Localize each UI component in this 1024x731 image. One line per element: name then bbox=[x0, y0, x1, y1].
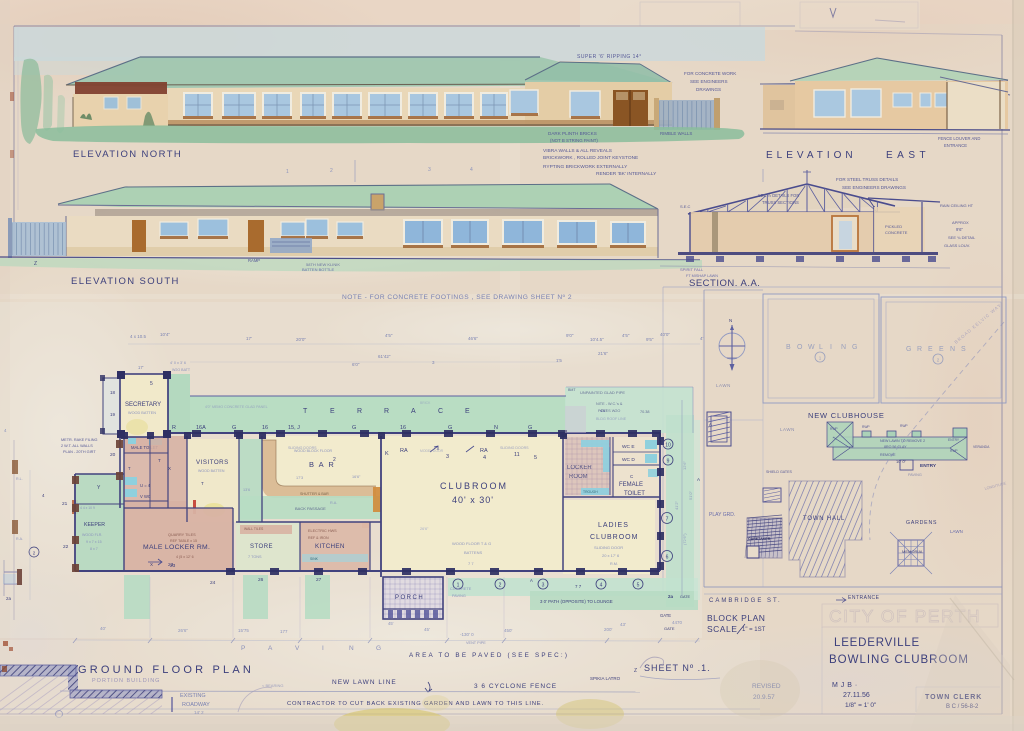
svg-text:WALL TILES: WALL TILES bbox=[244, 527, 264, 531]
svg-text:40': 40' bbox=[100, 626, 106, 631]
svg-text:4'5": 4'5" bbox=[385, 333, 393, 338]
svg-text:CLUBROOM: CLUBROOM bbox=[590, 534, 638, 541]
svg-text:4' 0 x 3' 6: 4' 0 x 3' 6 bbox=[170, 361, 186, 365]
svg-text:2a: 2a bbox=[668, 594, 674, 599]
svg-text:2a: 2a bbox=[6, 596, 12, 601]
svg-text:10'4.5": 10'4.5" bbox=[590, 337, 604, 342]
svg-text:N: N bbox=[349, 645, 354, 652]
svg-text:< BEARING: < BEARING bbox=[262, 683, 283, 688]
svg-text:SLIDING DOOR: SLIDING DOOR bbox=[594, 545, 623, 550]
svg-text:O: O bbox=[797, 344, 803, 351]
svg-text:ENTRANCE: ENTRANCE bbox=[944, 143, 967, 148]
svg-text:G: G bbox=[376, 645, 381, 652]
svg-text:3: 3 bbox=[542, 583, 545, 589]
svg-text:4': 4' bbox=[700, 336, 704, 341]
svg-text:PORTION BUILDING: PORTION BUILDING bbox=[92, 678, 160, 684]
svg-text:40'0": 40'0" bbox=[660, 332, 670, 337]
svg-text:B: B bbox=[786, 344, 791, 351]
svg-text:21: 21 bbox=[62, 501, 68, 507]
svg-text:4'0" MEMO CONCRETE GLAD PA: 4'0" MEMO CONCRETE GLAD PANEL bbox=[205, 405, 268, 409]
svg-text:PICKLED: PICKLED bbox=[885, 224, 902, 229]
svg-text:A: A bbox=[411, 408, 416, 415]
svg-text:R.M.: R.M. bbox=[610, 562, 618, 566]
svg-text:RA: RA bbox=[480, 448, 488, 454]
svg-text:PAVING: PAVING bbox=[452, 594, 466, 598]
svg-text:26: 26 bbox=[258, 577, 264, 583]
svg-text:DARK PLINTH BRICKS: DARK PLINTH BRICKS bbox=[548, 131, 597, 136]
svg-text:7 7: 7 7 bbox=[575, 584, 582, 589]
svg-text:UNPAINTED GLAD PIPE: UNPAINTED GLAD PIPE bbox=[580, 390, 625, 395]
svg-text:E: E bbox=[928, 346, 933, 353]
svg-text:U = 4: U = 4 bbox=[140, 483, 151, 488]
svg-text:7 TONS: 7 TONS bbox=[248, 555, 262, 559]
svg-text:17': 17' bbox=[138, 365, 144, 370]
svg-text:43': 43' bbox=[620, 622, 626, 627]
svg-text:ENTRY: ENTRY bbox=[948, 438, 960, 442]
svg-text:R: R bbox=[917, 346, 922, 353]
svg-text:GARDENS: GARDENS bbox=[906, 520, 937, 526]
svg-text:10'4": 10'4" bbox=[160, 332, 170, 337]
svg-text:FENCE LOUVER AND: FENCE LOUVER AND bbox=[938, 136, 980, 141]
svg-text:S: S bbox=[961, 346, 966, 353]
svg-text:K: K bbox=[385, 451, 389, 457]
svg-text:R: R bbox=[172, 425, 176, 431]
svg-text:E: E bbox=[939, 346, 944, 353]
svg-text:LOCKER: LOCKER bbox=[567, 465, 592, 471]
svg-text:(72'6"): (72'6") bbox=[682, 533, 687, 545]
svg-text:NEW LAWN TO REMOVE 2: NEW LAWN TO REMOVE 2 bbox=[880, 439, 925, 443]
svg-text:RWP: RWP bbox=[950, 449, 958, 453]
svg-text:WOOD FLOOR T & G: WOOD FLOOR T & G bbox=[452, 541, 491, 546]
svg-text:5: 5 bbox=[150, 381, 153, 387]
svg-text:ELEVATION: ELEVATION bbox=[766, 150, 857, 161]
svg-text:ELEVATION NORTH: ELEVATION NORTH bbox=[73, 149, 182, 160]
svg-text:4470: 4470 bbox=[672, 620, 683, 625]
svg-text:WOOD FLR.: WOOD FLR. bbox=[82, 533, 102, 537]
svg-text:FT MISHAP LAWN: FT MISHAP LAWN bbox=[686, 274, 718, 278]
svg-text:X: X bbox=[150, 562, 153, 567]
svg-text:20: 20 bbox=[110, 452, 116, 458]
svg-text:2: 2 bbox=[330, 168, 333, 174]
svg-text:61'42": 61'42" bbox=[378, 354, 391, 359]
svg-text:2: 2 bbox=[333, 457, 336, 463]
svg-text:MEMORIAL: MEMORIAL bbox=[902, 549, 924, 554]
svg-text:17': 17' bbox=[246, 336, 252, 341]
svg-text:WC D: WC D bbox=[622, 457, 635, 463]
svg-text:15, J: 15, J bbox=[288, 425, 300, 431]
svg-text:VERANDA: VERANDA bbox=[973, 445, 990, 449]
svg-text:FEMALE: FEMALE bbox=[619, 482, 643, 488]
svg-text:LAWN: LAWN bbox=[950, 529, 963, 534]
svg-text:M J B ·: M J B · bbox=[832, 682, 858, 689]
svg-text:SINK: SINK bbox=[310, 557, 319, 561]
svg-text:7 7: 7 7 bbox=[468, 561, 474, 566]
svg-text:I: I bbox=[322, 645, 324, 652]
svg-text:ELECTRIC HWS: ELECTRIC HWS bbox=[308, 529, 337, 533]
svg-text:12'6": 12'6" bbox=[682, 461, 687, 470]
svg-text:BATTENS: BATTENS bbox=[464, 550, 482, 555]
svg-text:CAMBRIDGE ST.: CAMBRIDGE ST. bbox=[709, 598, 782, 604]
svg-text:RIMBLE WALLS: RIMBLE WALLS bbox=[660, 131, 692, 136]
svg-text:9'5": 9'5" bbox=[646, 337, 654, 342]
svg-text:9'0": 9'0" bbox=[566, 333, 574, 338]
svg-text:26'6": 26'6" bbox=[420, 527, 429, 531]
svg-text:20 x 17' 6: 20 x 17' 6 bbox=[602, 553, 620, 558]
svg-text:W2O BATT: W2O BATT bbox=[172, 368, 191, 372]
svg-text:REF TABLE x 15: REF TABLE x 15 bbox=[170, 539, 197, 543]
svg-text:GATE: GATE bbox=[664, 626, 675, 631]
svg-text:NITE - W.C.'s &: NITE - W.C.'s & bbox=[596, 402, 623, 406]
svg-text:3: 3 bbox=[446, 454, 449, 460]
svg-text:SEE ENGINEERS DRAWINGS: SEE ENGINEERS DRAWINGS bbox=[842, 185, 906, 190]
svg-text:R.A.: R.A. bbox=[16, 537, 23, 541]
svg-text:V: V bbox=[295, 645, 300, 652]
svg-text:BATTEN BOTTLE: BATTEN BOTTLE bbox=[302, 267, 334, 272]
svg-text:G: G bbox=[906, 346, 911, 353]
svg-text:PLAN - 20TH GIRT: PLAN - 20TH GIRT bbox=[63, 450, 96, 454]
svg-text:Z: Z bbox=[634, 668, 637, 674]
svg-text:SHUTTER & BAR: SHUTTER & BAR bbox=[300, 492, 329, 496]
svg-text:BACK PASSAGE: BACK PASSAGE bbox=[295, 506, 326, 511]
svg-text:17'3: 17'3 bbox=[296, 476, 303, 480]
svg-text:CONTRACTOR TO CUT BA: CONTRACTOR TO CUT BACK EXISTING GARDEN A… bbox=[287, 701, 544, 707]
svg-text:1/8" = 1' 0": 1/8" = 1' 0" bbox=[845, 702, 877, 709]
svg-text:METR. RAKE FILING: METR. RAKE FILING bbox=[61, 438, 98, 442]
svg-text:KITCHEN: KITCHEN bbox=[315, 543, 345, 550]
svg-text:70.38: 70.38 bbox=[640, 410, 650, 414]
svg-text:4: 4 bbox=[483, 455, 486, 461]
svg-text:4: 4 bbox=[470, 167, 473, 173]
svg-text:MALE LOCKER RM.: MALE LOCKER RM. bbox=[143, 544, 210, 551]
svg-text:SEE ½ DETAILS FOR: SEE ½ DETAILS FOR bbox=[758, 193, 799, 198]
svg-text:7: 7 bbox=[666, 517, 669, 523]
svg-text:22: 22 bbox=[63, 544, 69, 550]
svg-text:RWP: RWP bbox=[900, 424, 908, 428]
svg-text:APPROX: APPROX bbox=[952, 220, 969, 225]
svg-text:VENT PIPE: VENT PIPE bbox=[466, 641, 486, 645]
svg-text:B A R: B A R bbox=[309, 460, 335, 469]
svg-text:ENTRANCE: ENTRANCE bbox=[848, 595, 880, 601]
svg-text:G: G bbox=[852, 344, 857, 351]
svg-text:24: 24 bbox=[210, 580, 216, 586]
svg-text:200': 200' bbox=[604, 627, 613, 632]
svg-text:LADIES: LADIES bbox=[598, 522, 629, 529]
svg-text:2: 2 bbox=[499, 583, 502, 589]
svg-text:45': 45' bbox=[388, 621, 394, 626]
svg-text:5: 5 bbox=[534, 455, 537, 461]
svg-text:E: E bbox=[330, 408, 335, 415]
svg-text:L: L bbox=[819, 344, 823, 351]
svg-text:20'0": 20'0" bbox=[296, 337, 306, 342]
svg-text:CONCRETE: CONCRETE bbox=[885, 230, 908, 235]
svg-text:VISITORS: VISITORS bbox=[196, 459, 229, 466]
svg-text:SECRETARY: SECRETARY bbox=[125, 402, 161, 408]
svg-text:4 4 x 10 9: 4 4 x 10 9 bbox=[80, 506, 95, 510]
svg-text:3 0' PATH (OPPOSITE) T: 3 0' PATH (OPPOSITE) TO LOUNGE bbox=[540, 599, 613, 604]
svg-text:9 x 7 x 15: 9 x 7 x 15 bbox=[86, 540, 102, 544]
svg-text:WOOD BATTEN: WOOD BATTEN bbox=[128, 411, 156, 415]
svg-text:1" = 1ST: 1" = 1ST bbox=[742, 627, 766, 633]
svg-text:R: R bbox=[357, 408, 362, 415]
svg-text:MODEL DOOR: MODEL DOOR bbox=[420, 449, 444, 453]
svg-text:6'0": 6'0" bbox=[352, 362, 360, 367]
svg-text:S.E.C: S.E.C bbox=[680, 204, 691, 209]
svg-text:SEE ENGINEERS: SEE ENGINEERS bbox=[690, 79, 728, 84]
svg-text:SECTION. A.A.: SECTION. A.A. bbox=[689, 278, 760, 289]
svg-text:R.A.: R.A. bbox=[330, 501, 337, 505]
svg-text:AREA TO BE PAVED (SEE: AREA TO BE PAVED (SEE SPEC:) bbox=[409, 652, 569, 659]
svg-text:RYPTING BRICKWORK EXTERNALL: RYPTING BRICKWORK EXTERNALLY bbox=[543, 164, 628, 170]
svg-text:ELEVATION SOUTH: ELEVATION SOUTH bbox=[71, 276, 180, 287]
svg-text:4: 4 bbox=[600, 583, 603, 589]
svg-text:BLOCK PLAN: BLOCK PLAN bbox=[707, 613, 765, 623]
svg-text:WOOD BATTEN: WOOD BATTEN bbox=[198, 469, 225, 473]
svg-text:16: 16 bbox=[262, 425, 268, 431]
svg-text:2 W.T. ALL WALLS: 2 W.T. ALL WALLS bbox=[61, 444, 93, 448]
svg-text:T: T bbox=[201, 481, 204, 486]
svg-text:27: 27 bbox=[316, 577, 322, 583]
svg-text:51'0": 51'0" bbox=[688, 491, 693, 500]
svg-text:T: T bbox=[303, 408, 308, 415]
svg-text:R: R bbox=[384, 408, 389, 415]
svg-text:16'6": 16'6" bbox=[352, 475, 361, 479]
svg-text:GATE: GATE bbox=[680, 595, 691, 599]
svg-text:4 x 10.5: 4 x 10.5 bbox=[130, 334, 147, 339]
svg-text:RAIN CEILING HT: RAIN CEILING HT bbox=[940, 203, 974, 208]
svg-text:SLIDING DOORS: SLIDING DOORS bbox=[288, 446, 317, 450]
svg-text:GLASS LOUV.: GLASS LOUV. bbox=[944, 243, 970, 248]
svg-text:9'6": 9'6" bbox=[956, 227, 963, 232]
svg-text:SCALE: SCALE bbox=[707, 624, 737, 634]
svg-text:ROOM: ROOM bbox=[569, 474, 588, 480]
svg-text:SHIELD GATES: SHIELD GATES bbox=[766, 470, 792, 474]
svg-text:A: A bbox=[530, 578, 533, 583]
svg-text:EAST: EAST bbox=[886, 150, 930, 161]
svg-text:11: 11 bbox=[514, 452, 520, 458]
svg-text:TROUGH: TROUGH bbox=[583, 490, 598, 494]
svg-text:3 6 CYCLONE FENCE: 3 6 CYCLONE FENCE bbox=[474, 683, 557, 690]
svg-text:4'5": 4'5" bbox=[622, 333, 630, 338]
svg-text:R.L.: R.L. bbox=[16, 477, 23, 481]
svg-text:45': 45' bbox=[424, 627, 430, 632]
svg-text:PORCH: PORCH bbox=[395, 595, 424, 601]
svg-text:DRAWINGS: DRAWINGS bbox=[696, 87, 721, 92]
svg-text:BRICKWORK , ROLLED JOINT KEYST: BRICKWORK , ROLLED JOINT KEYSTONE bbox=[543, 155, 638, 161]
svg-text:RENDER 'BK' INTERNALLY: RENDER 'BK' INTERNALLY bbox=[596, 171, 657, 177]
svg-text:LEEDERVILLE: LEEDERVILLE bbox=[834, 637, 920, 649]
svg-text:SUPER '6' RIPPING 14°: SUPER '6' RIPPING 14° bbox=[577, 54, 642, 60]
svg-text:C: C bbox=[438, 408, 443, 415]
svg-text:41'2": 41'2" bbox=[674, 501, 679, 510]
svg-text:LAWN: LAWN bbox=[716, 383, 731, 388]
svg-text:13'6: 13'6 bbox=[243, 488, 250, 492]
svg-text:ROADWAY: ROADWAY bbox=[182, 702, 210, 708]
svg-text:GATE: GATE bbox=[660, 613, 671, 618]
svg-text:RWP: RWP bbox=[830, 427, 838, 431]
svg-text:8 x 7: 8 x 7 bbox=[90, 547, 98, 551]
svg-text:4 (5 x 12' 6: 4 (5 x 12' 6 bbox=[176, 555, 194, 559]
svg-text:23: 23 bbox=[168, 562, 174, 568]
svg-text:REF & IRON: REF & IRON bbox=[308, 536, 329, 540]
svg-text:SEE ¾ DETAIL: SEE ¾ DETAIL bbox=[948, 235, 976, 240]
svg-text:RA: RA bbox=[400, 448, 408, 454]
svg-text:SLIDING DOORS: SLIDING DOORS bbox=[500, 446, 529, 450]
svg-text:PAVING: PAVING bbox=[908, 473, 922, 477]
svg-text:21'6": 21'6" bbox=[598, 351, 608, 356]
svg-text:BLDG ROOF LINE: BLDG ROOF LINE bbox=[596, 417, 627, 421]
svg-text:E: E bbox=[465, 408, 470, 415]
svg-text:18: 18 bbox=[110, 390, 116, 395]
svg-text:1: 1 bbox=[286, 169, 289, 175]
svg-text:T: T bbox=[128, 466, 131, 471]
svg-text:P: P bbox=[241, 645, 245, 652]
svg-text:N: N bbox=[841, 344, 846, 351]
svg-text:CLUBROOM: CLUBROOM bbox=[440, 481, 508, 491]
svg-text:5: 5 bbox=[637, 583, 640, 589]
svg-text:V WC: V WC bbox=[140, 494, 151, 499]
svg-text:40' x 30': 40' x 30' bbox=[452, 495, 494, 505]
svg-text:NEW CLUBHOUSE: NEW CLUBHOUSE bbox=[808, 411, 885, 420]
svg-text:W: W bbox=[808, 344, 815, 351]
svg-text:T: T bbox=[158, 458, 161, 463]
svg-text:KEEPER: KEEPER bbox=[84, 522, 105, 528]
svg-text:TOILET: TOILET bbox=[624, 491, 645, 497]
svg-text:STORE: STORE bbox=[250, 544, 273, 550]
svg-text:3: 3 bbox=[428, 167, 431, 173]
svg-text:A: A bbox=[697, 477, 700, 482]
svg-text:VIBRA WALLS & ALL REVEALS: VIBRA WALLS & ALL REVEALS bbox=[543, 148, 612, 154]
svg-text:9: 9 bbox=[667, 459, 670, 465]
svg-text:14' 2: 14' 2 bbox=[194, 710, 204, 715]
svg-text:26'6": 26'6" bbox=[178, 628, 188, 633]
svg-text:BRICK: BRICK bbox=[420, 401, 431, 405]
svg-text:NEW LAWN LINE: NEW LAWN LINE bbox=[332, 679, 397, 686]
svg-text:10: 10 bbox=[665, 443, 671, 449]
svg-text:LAWN: LAWN bbox=[780, 427, 795, 432]
svg-text:-130' 0: -130' 0 bbox=[460, 632, 474, 637]
svg-text:15'75: 15'75 bbox=[238, 628, 249, 633]
svg-text:450': 450' bbox=[504, 628, 513, 633]
svg-text:46'6": 46'6" bbox=[468, 336, 478, 341]
svg-text:TOWN HALL: TOWN HALL bbox=[803, 516, 845, 522]
svg-text:SPIRIT FALL: SPIRIT FALL bbox=[680, 267, 704, 272]
svg-text:19: 19 bbox=[110, 412, 116, 417]
svg-text:177: 177 bbox=[280, 629, 288, 634]
svg-text:BMT: BMT bbox=[568, 388, 576, 392]
svg-text:EXISTING: EXISTING bbox=[180, 693, 206, 699]
svg-text:G: G bbox=[352, 425, 356, 431]
svg-text:SHEET Nº .1.: SHEET Nº .1. bbox=[644, 663, 711, 673]
svg-text:N: N bbox=[950, 346, 955, 353]
svg-text:FOR CONCRETE WORK: FOR CONCRETE WORK bbox=[684, 71, 737, 76]
svg-text:I: I bbox=[830, 344, 832, 351]
svg-text:Z: Z bbox=[34, 261, 37, 267]
svg-text:CONCRETE: CONCRETE bbox=[450, 587, 472, 591]
svg-text:RAMP: RAMP bbox=[248, 258, 260, 263]
svg-text:PLAY GRD.: PLAY GRD. bbox=[709, 512, 735, 518]
svg-text:8RO 56 CLAY: 8RO 56 CLAY bbox=[884, 445, 907, 449]
svg-text:REMOVE: REMOVE bbox=[880, 453, 896, 457]
svg-text:RWP: RWP bbox=[862, 425, 870, 429]
svg-text:QUARRY TILES: QUARRY TILES bbox=[168, 533, 196, 537]
svg-text:A: A bbox=[268, 645, 273, 652]
svg-text:POLES W2O: POLES W2O bbox=[598, 409, 620, 413]
svg-text:SPIKIA LATRO: SPIKIA LATRO bbox=[590, 676, 621, 681]
svg-text:(NOT B STRING PAINT): (NOT B STRING PAINT) bbox=[550, 138, 598, 143]
svg-text:GROUND FLOOR PLAN: GROUND FLOOR PLAN bbox=[78, 664, 254, 676]
svg-text:27.11.56: 27.11.56 bbox=[843, 692, 870, 699]
svg-text:TRUSS SECTIONS: TRUSS SECTIONS bbox=[762, 200, 799, 205]
svg-text:NOTE - FOR CONCRETE FOOTI: NOTE - FOR CONCRETE FOOTINGS , SEE DRAWI… bbox=[342, 294, 572, 301]
svg-text:CARETAKER: CARETAKER bbox=[748, 537, 771, 541]
svg-text:WC E: WC E bbox=[622, 444, 635, 450]
svg-text:ENTRY: ENTRY bbox=[920, 463, 937, 469]
svg-text:6: 6 bbox=[666, 555, 669, 561]
svg-text:FOR STEEL TRUSS DETAILS: FOR STEEL TRUSS DETAILS bbox=[836, 177, 898, 182]
svg-text:10' 0": 10' 0" bbox=[896, 459, 907, 464]
svg-text:N: N bbox=[729, 318, 732, 323]
